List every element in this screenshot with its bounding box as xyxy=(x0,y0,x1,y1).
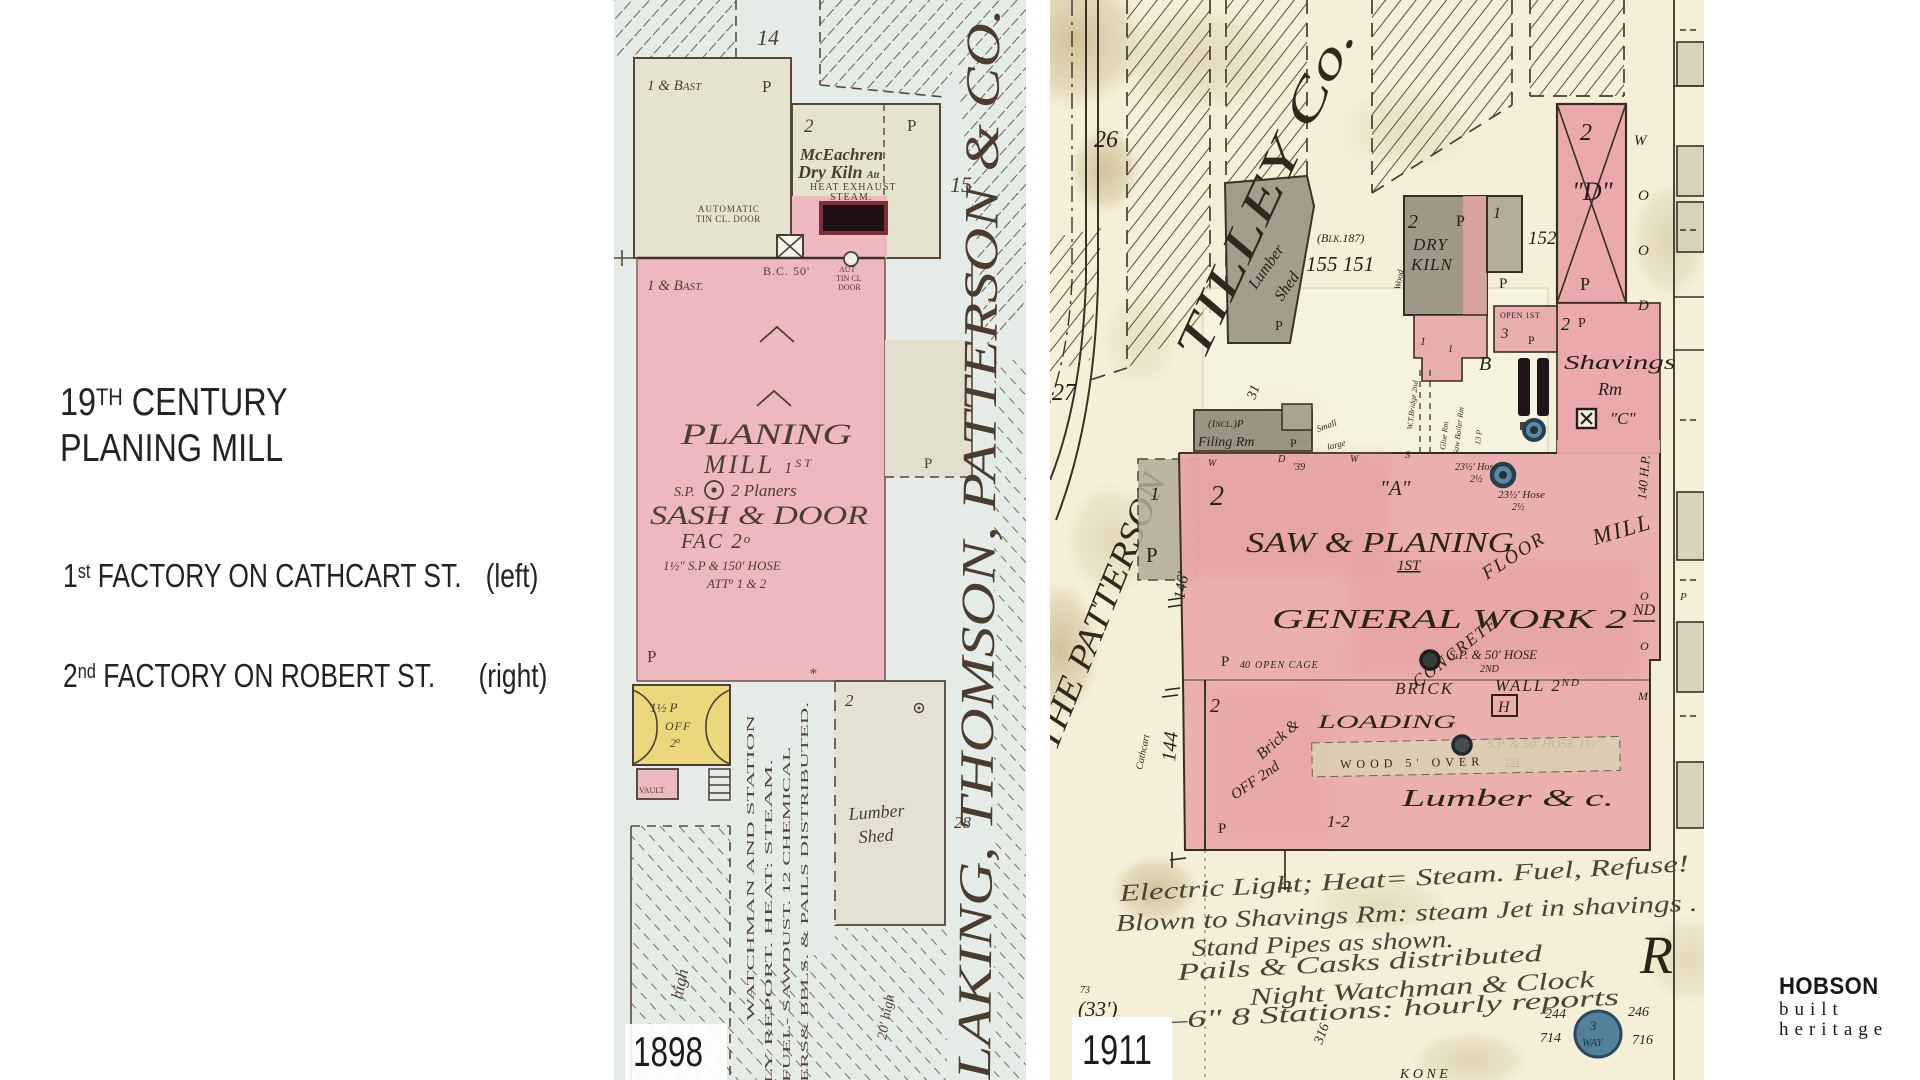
svg-text:Shed: Shed xyxy=(858,825,895,847)
svg-text:73: 73 xyxy=(1080,985,1090,996)
svg-text:3: 3 xyxy=(1500,326,1509,342)
svg-text:714: 714 xyxy=(1540,1031,1561,1046)
svg-text:KILN: KILN xyxy=(1410,255,1453,274)
svg-text:SAW & PLANING: SAW & PLANING xyxy=(1246,528,1514,559)
svg-text:PLANING: PLANING xyxy=(680,418,853,451)
svg-text:*: * xyxy=(809,666,817,682)
svg-text:23½' Hose: 23½' Hose xyxy=(1498,489,1545,501)
svg-text:P: P xyxy=(647,647,656,666)
svg-text:ND: ND xyxy=(1632,602,1656,619)
svg-text:OPEN 1ST: OPEN 1ST xyxy=(1500,311,1540,320)
svg-text:O: O xyxy=(1640,589,1649,603)
svg-text:WAY: WAY xyxy=(1582,1037,1605,1049)
svg-text:2½: 2½ xyxy=(1470,474,1483,485)
svg-text:DOOR: DOOR xyxy=(838,283,861,292)
svg-text:(BLK.187): (BLK.187) xyxy=(1317,231,1364,245)
svg-text:FUEL- SAWDUST. 12 CHEMICAL: FUEL- SAWDUST. 12 CHEMICAL xyxy=(782,747,793,1080)
svg-text:P: P xyxy=(1580,274,1590,294)
svg-text:GENERAL WORK 2: GENERAL WORK 2 xyxy=(1272,604,1627,634)
svg-text:OPEN CAGE: OPEN CAGE xyxy=(1255,660,1319,671)
svg-text:P: P xyxy=(1499,276,1507,292)
svg-text:(INCL.)P: (INCL.)P xyxy=(1208,418,1244,430)
svg-text:P: P xyxy=(1290,436,1297,450)
svg-text:BRICK: BRICK xyxy=(1395,679,1454,698)
svg-text:"D": "D" xyxy=(1572,177,1613,206)
svg-text:TIN CL: TIN CL xyxy=(836,274,862,283)
svg-text:WATCHMAN AND STATION: WATCHMAN AND STATION xyxy=(746,715,757,1021)
svg-text:27: 27 xyxy=(1052,380,1077,406)
svg-text:2: 2 xyxy=(845,691,854,710)
svg-text:O: O xyxy=(1638,243,1649,259)
svg-text:1: 1 xyxy=(1420,334,1426,348)
svg-text:144: 144 xyxy=(1158,731,1183,763)
svg-text:P: P xyxy=(907,116,916,135)
svg-text:246: 246 xyxy=(1628,1005,1649,1020)
svg-text:S: S xyxy=(1405,450,1410,461)
svg-text:2: 2 xyxy=(1408,211,1418,233)
svg-text:Filing Rm: Filing Rm xyxy=(1197,435,1254,450)
svg-text:1ST: 1ST xyxy=(1397,558,1422,574)
svg-text:AUTOMATIC: AUTOMATIC xyxy=(698,204,760,214)
svg-text:FAC 2o: FAC 2o xyxy=(680,529,752,553)
svg-text:1 & BAST: 1 & BAST xyxy=(647,78,702,94)
svg-text:O: O xyxy=(1638,188,1649,204)
svg-text:244: 244 xyxy=(1545,1007,1566,1022)
svg-text:155 151: 155 151 xyxy=(1306,252,1374,276)
svg-text:40: 40 xyxy=(1240,660,1250,671)
svg-text:ERS& BBLS. & PAILS DISTRIBUTE: ERS& BBLS. & PAILS DISTRIBUTED. xyxy=(800,702,811,1080)
svg-text:23½' Hose: 23½' Hose xyxy=(1455,462,1498,473)
svg-text:P: P xyxy=(762,77,771,96)
svg-text:"C": "C" xyxy=(1610,409,1636,428)
svg-text:ATTo 1 & 2: ATTo 1 & 2 xyxy=(706,576,767,591)
svg-text:152: 152 xyxy=(1528,228,1557,249)
svg-text:2: 2 xyxy=(804,116,814,137)
svg-text:P: P xyxy=(1679,591,1687,603)
svg-text:Rm: Rm xyxy=(1597,379,1622,399)
svg-text:1911: 1911 xyxy=(1082,1026,1152,1073)
svg-text:S.P.: S.P. xyxy=(674,485,695,500)
svg-text:2ND: 2ND xyxy=(1480,664,1500,675)
svg-text:DRY: DRY xyxy=(1412,235,1448,254)
svg-text:S.P. & 50' HOSE: S.P. & 50' HOSE xyxy=(1449,647,1537,662)
svg-text:B.C. 50': B.C. 50' xyxy=(763,264,810,278)
svg-text:P: P xyxy=(1456,213,1465,230)
svg-text:AUT: AUT xyxy=(839,265,856,274)
svg-text:P: P xyxy=(1146,543,1158,567)
svg-text:1: 1 xyxy=(1448,344,1453,355)
svg-text:1½" S.P & 150' HOSE: 1½" S.P & 150' HOSE xyxy=(663,558,781,573)
svg-text:O: O xyxy=(1640,639,1649,653)
svg-text:OFF: OFF xyxy=(665,719,691,733)
svg-text:D: D xyxy=(1637,298,1649,314)
svg-text:1-2: 1-2 xyxy=(1327,812,1350,831)
svg-text:LY REPORT. HEAT: STEAM.: LY REPORT. HEAT: STEAM. xyxy=(764,759,775,1080)
svg-text:1898: 1898 xyxy=(633,1028,703,1075)
svg-text:D: D xyxy=(1277,454,1286,465)
svg-text:1: 1 xyxy=(1150,484,1160,505)
svg-text:H: H xyxy=(1497,699,1511,716)
svg-text:LAKING, THOMSON, PATTERSON & C: LAKING, THOMSON, PATTERSON & CO. xyxy=(948,8,1010,1080)
svg-text:3: 3 xyxy=(1589,1018,1597,1033)
svg-text:STEAM.: STEAM. xyxy=(830,192,872,203)
svg-text:P: P xyxy=(924,456,932,472)
svg-text:M: M xyxy=(1637,689,1649,703)
svg-text:TIN CL. DOOR: TIN CL. DOOR xyxy=(696,214,761,224)
svg-text:P: P xyxy=(1528,333,1535,347)
svg-text:P: P xyxy=(1275,319,1283,334)
svg-text:1 & BAST.: 1 & BAST. xyxy=(647,278,703,294)
svg-text:Lumber: Lumber xyxy=(847,800,906,824)
svg-text:Lumber & c.: Lumber & c. xyxy=(1400,786,1614,812)
svg-text:VAULT: VAULT xyxy=(639,786,664,795)
svg-text:1½ P: 1½ P xyxy=(650,700,678,715)
svg-text:B: B xyxy=(1479,353,1491,375)
svg-text:2 Planers: 2 Planers xyxy=(731,481,797,500)
svg-text:'39: '39 xyxy=(1293,462,1305,473)
svg-text:P: P xyxy=(1218,821,1226,837)
svg-text:2½: 2½ xyxy=(1512,502,1525,513)
svg-text:W: W xyxy=(1634,133,1648,149)
svg-text:R O L: R O L xyxy=(1639,925,1704,985)
svg-text:2: 2 xyxy=(1210,695,1220,717)
svg-text:LOADING: LOADING xyxy=(1316,712,1456,733)
svg-text:716: 716 xyxy=(1632,1033,1653,1048)
svg-text:2: 2 xyxy=(1561,314,1570,334)
svg-text:K O N E: K O N E xyxy=(1399,1067,1448,1080)
svg-text:1: 1 xyxy=(1493,205,1501,222)
svg-text:2: 2 xyxy=(1580,120,1592,146)
svg-text:2: 2 xyxy=(1210,481,1224,512)
svg-text:13 P: 13 P xyxy=(1473,429,1484,445)
svg-text:P: P xyxy=(1578,316,1586,331)
svg-text:26: 26 xyxy=(1094,127,1118,153)
svg-text:"A": "A" xyxy=(1380,476,1411,500)
svg-text:Shavings: Shavings xyxy=(1564,352,1676,374)
svg-text:SASH & DOOR: SASH & DOOR xyxy=(650,501,868,530)
svg-text:14: 14 xyxy=(757,25,779,50)
svg-text:P: P xyxy=(1221,654,1229,670)
